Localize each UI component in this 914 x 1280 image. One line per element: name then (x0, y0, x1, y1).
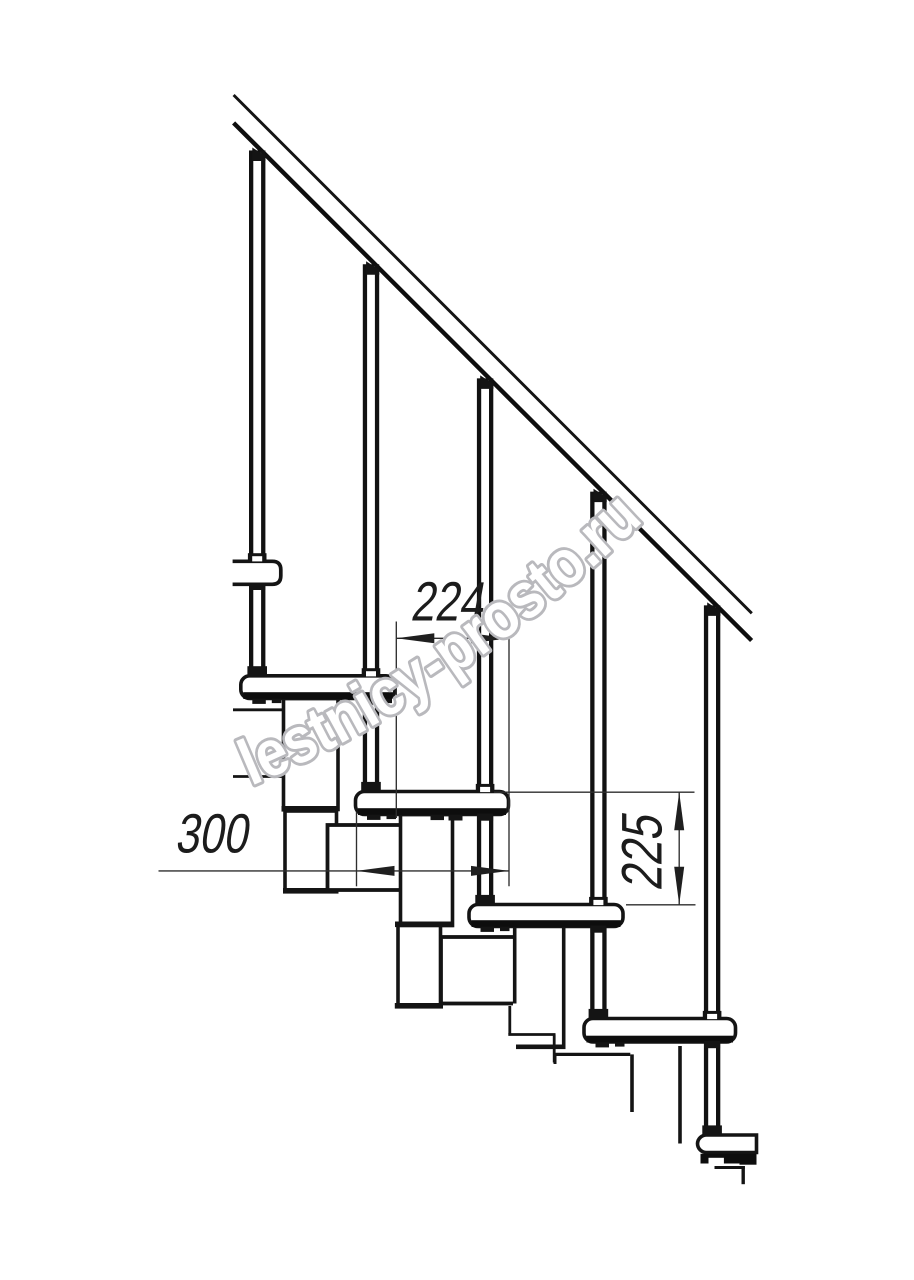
svg-text:300: 300 (172, 802, 256, 865)
svg-text:225: 225 (611, 807, 675, 893)
svg-text:lestnicy-prosto.ru: lestnicy-prosto.ru (228, 478, 654, 799)
